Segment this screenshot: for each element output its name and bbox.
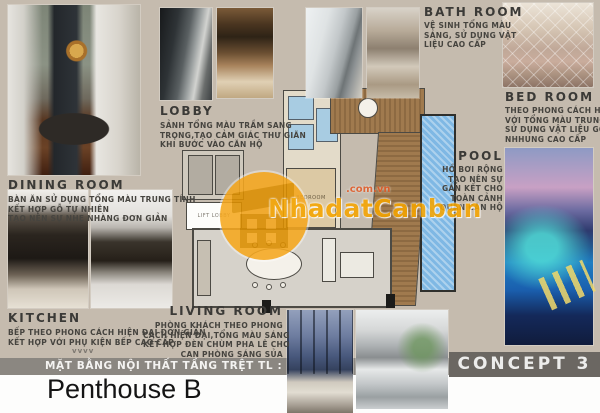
lobby-line: TRỌNG,TẠO CẢM GIÁC THƯ GIÃN — [160, 131, 306, 141]
bathroom-title: BATH ROOM — [424, 5, 524, 19]
bath-line: SÁNG, SỬ DỤNG VẬT — [424, 31, 517, 41]
bathroom-photo-1 — [306, 8, 362, 98]
plan-terrace-table — [358, 98, 378, 118]
plan-chair — [252, 282, 258, 288]
plan-chair — [252, 242, 258, 248]
bed-line: NHHUNG CAO CẤP — [505, 135, 600, 145]
bed-line: VỚI TỔNG MÀU TRUNG TÍNH, — [505, 116, 600, 126]
lobby-photo-2 — [217, 8, 273, 98]
pool-line: GẮN KẾT CHO — [423, 184, 503, 194]
living-room-description: PHÒNG KHÁCH THEO PHONG CÁCH HIỆN ĐẠI,TỔN… — [143, 321, 283, 359]
lobby-photo-1 — [160, 8, 212, 100]
pool-line: QUAN CĂN HỘ — [423, 203, 503, 213]
dining-line: TẠO NÊN SỰ NHẸ NHÀNG ĐƠN GIẢN — [8, 214, 196, 224]
plan-bathroom-area-1 — [288, 96, 314, 120]
concept-board: BEDROOM LIFT LOBBY DINING ROOM BÀN Ă — [0, 0, 600, 413]
lobby-line: SẢNH TỔNG MÀU TRẦM SANG — [160, 121, 306, 131]
living-line: PHÒNG KHÁCH THEO PHONG — [143, 321, 283, 331]
dining-line: KẾT HỢP GỖ TỰ NHIÊN — [8, 205, 196, 215]
living-room-title: LIVING ROOM — [169, 304, 283, 318]
bath-line: LIỆU CAO CẤP — [424, 40, 517, 50]
bath-line: VỆ SINH TỔNG MÀU — [424, 21, 517, 31]
plan-door-mark — [386, 294, 395, 308]
bathroom-photo-2 — [367, 8, 419, 98]
plan-elevator-shaft-2 — [215, 155, 240, 195]
project-name: Penthouse B — [47, 374, 202, 405]
pool-photo — [505, 148, 593, 345]
pool-line: TOÀN CẢNH — [423, 194, 503, 204]
pool-description: HỒ BƠI RỘNG TẠO NÊN SỰ GẮN KẾT CHO TOÀN … — [423, 165, 503, 213]
plan-chair — [266, 284, 272, 290]
living-room-photo-2 — [356, 310, 448, 409]
living-line: KẾT HỢP ĐÈN CHÙM PHA LÊ CHO — [143, 340, 283, 350]
dining-room-photo — [8, 5, 140, 175]
lobby-title: LOBBY — [160, 104, 214, 118]
plan-bedroom-area: BEDROOM — [286, 168, 336, 228]
plan-kitchen-counter — [197, 240, 211, 296]
concept-banner: CONCEPT 3 — [449, 352, 600, 377]
pool-title: POOL — [458, 149, 503, 163]
living-line: CAN PHÒNG SÁNG SỦA — [143, 350, 283, 360]
kitchen-title: KITCHEN — [8, 311, 81, 325]
pool-line: HỒ BƠI RỘNG — [423, 165, 503, 175]
bed-line: SỬ DỤNG VẬT LIỆU GỖ, — [505, 125, 600, 135]
living-line: CÁCH HIỆN ĐẠI,TỔNG MÀU SÁNG — [143, 331, 283, 341]
bedroom-title: BED ROOM — [505, 90, 594, 104]
plan-chair — [266, 240, 272, 246]
plan-dining-table — [246, 248, 302, 280]
dining-room-description: BÀN ĂN SỬ DỤNG TỔNG MÀU TRUNG TÍNH KẾT H… — [8, 195, 196, 224]
bathroom-description: VỆ SINH TỔNG MÀU SÁNG, SỬ DỤNG VẬT LIỆU … — [424, 21, 517, 50]
lobby-line: KHI BƯỚC VÀO CĂN HỘ — [160, 140, 306, 150]
pool-line: TẠO NÊN SỰ — [423, 175, 503, 185]
plan-chair — [280, 282, 286, 288]
bedroom-description: THEO PHONG CÁCH HIỆN ĐẠI VỚI TỔNG MÀU TR… — [505, 106, 600, 144]
bed-line: THEO PHONG CÁCH HIỆN ĐẠI — [505, 106, 600, 116]
footer-decor: vvvv — [72, 347, 94, 355]
lobby-description: SẢNH TỔNG MÀU TRẦM SANG TRỌNG,TẠO CẢM GI… — [160, 121, 306, 150]
plan-sofa — [322, 238, 336, 282]
plan-sofa — [340, 252, 374, 278]
dining-line: BÀN ĂN SỬ DỤNG TỔNG MÀU TRUNG TÍNH — [8, 195, 196, 205]
living-room-photo-1 — [287, 310, 353, 413]
dining-room-title: DINING ROOM — [8, 178, 125, 192]
plan-elevator-shaft-1 — [188, 155, 213, 195]
plan-elevator-block — [182, 150, 244, 200]
plan-chair — [280, 242, 286, 248]
